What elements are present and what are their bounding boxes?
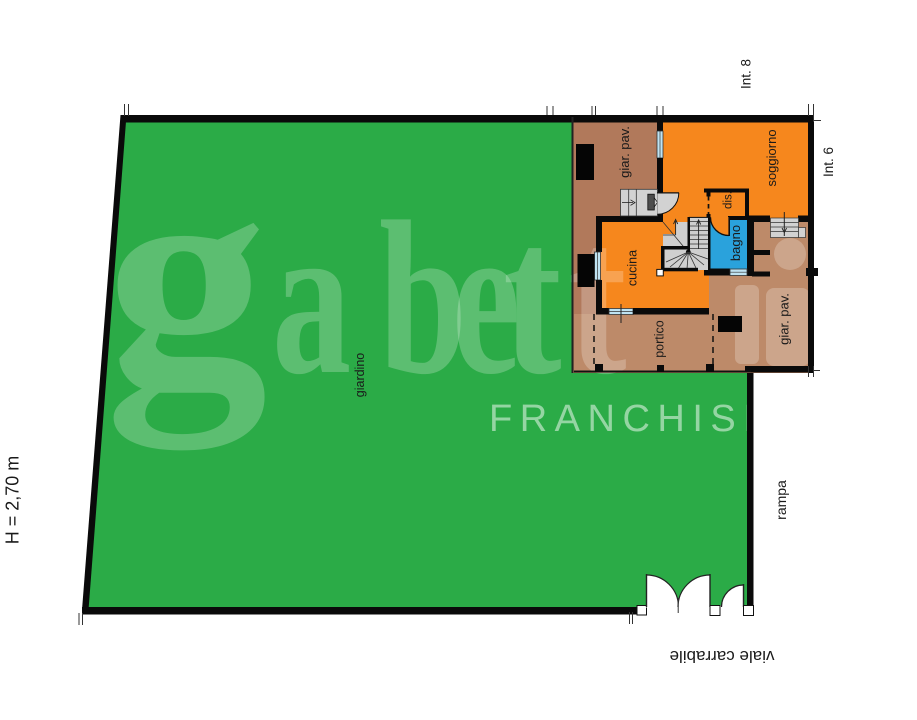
svg-text:t: t [503, 177, 562, 421]
svg-text:rampa: rampa [773, 480, 789, 520]
svg-text:bagno: bagno [728, 225, 743, 261]
svg-text:Int. 8: Int. 8 [739, 59, 754, 89]
svg-text:a: a [272, 177, 351, 420]
svg-text:cucina: cucina [626, 250, 640, 286]
svg-text:giar. pav.: giar. pav. [777, 293, 792, 345]
svg-text:viale carrabile: viale carrabile [670, 647, 775, 666]
svg-text:H = 2,70 m: H = 2,70 m [3, 456, 23, 545]
svg-text:g: g [105, 106, 268, 455]
svg-text:giardino: giardino [353, 353, 367, 398]
svg-text:Int. 6: Int. 6 [821, 147, 836, 177]
svg-text:soggiorno: soggiorno [764, 129, 779, 186]
svg-text:dis.: dis. [723, 191, 735, 209]
svg-text:portico: portico [653, 320, 667, 358]
svg-text:giar. pav.: giar. pav. [617, 126, 632, 178]
